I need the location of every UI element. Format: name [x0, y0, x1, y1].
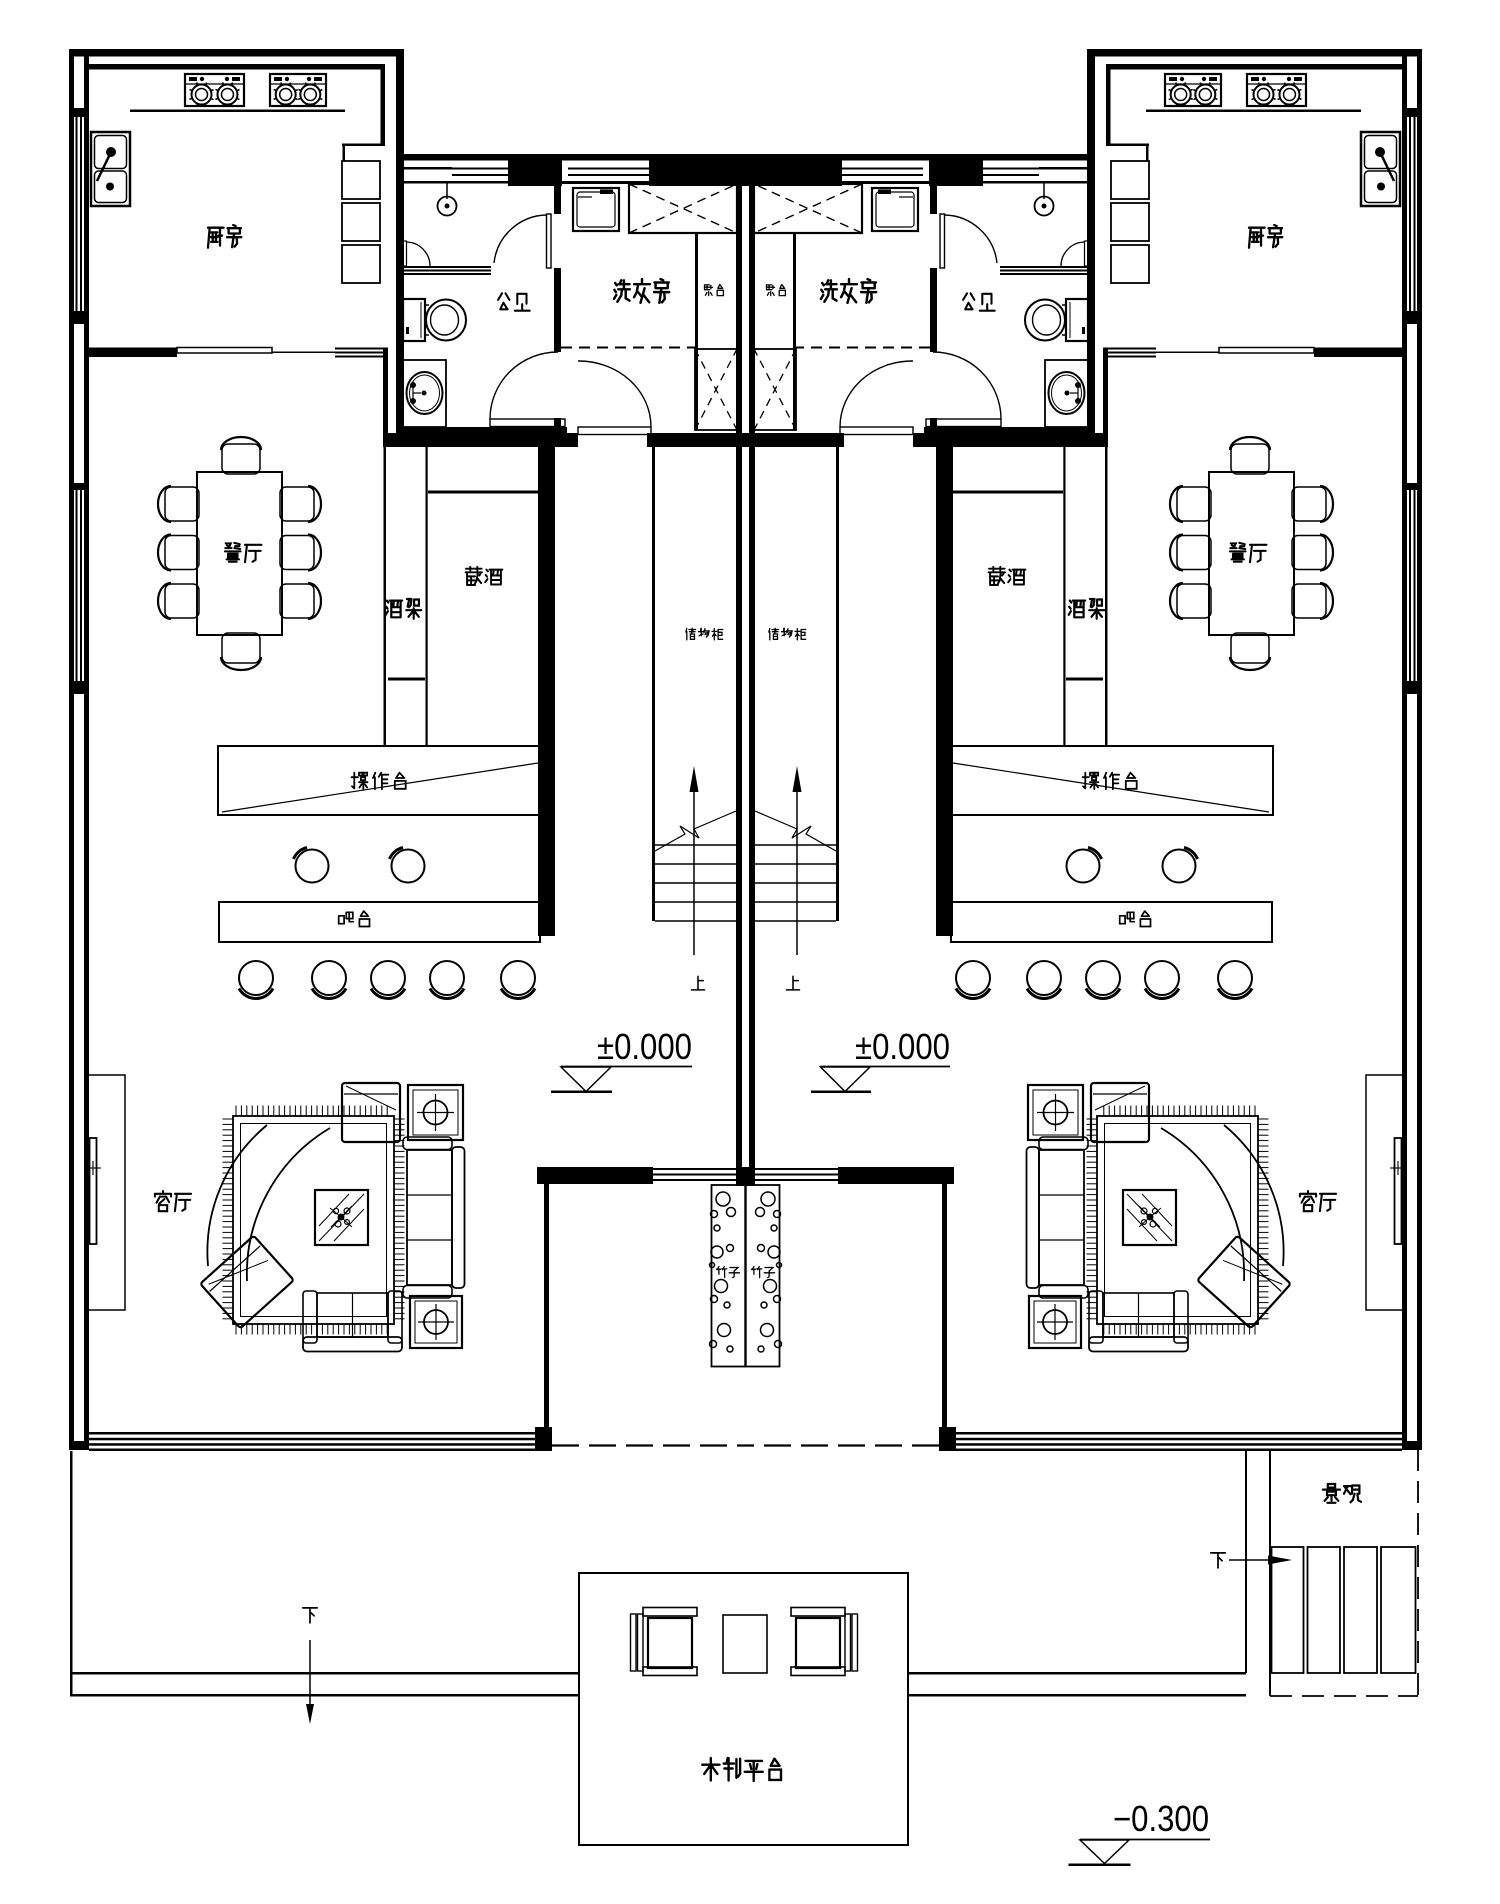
- svg-text:±0.000: ±0.000: [855, 1026, 950, 1067]
- svg-text:−0.300: −0.300: [1113, 1798, 1209, 1839]
- svg-text:±0.000: ±0.000: [597, 1026, 692, 1067]
